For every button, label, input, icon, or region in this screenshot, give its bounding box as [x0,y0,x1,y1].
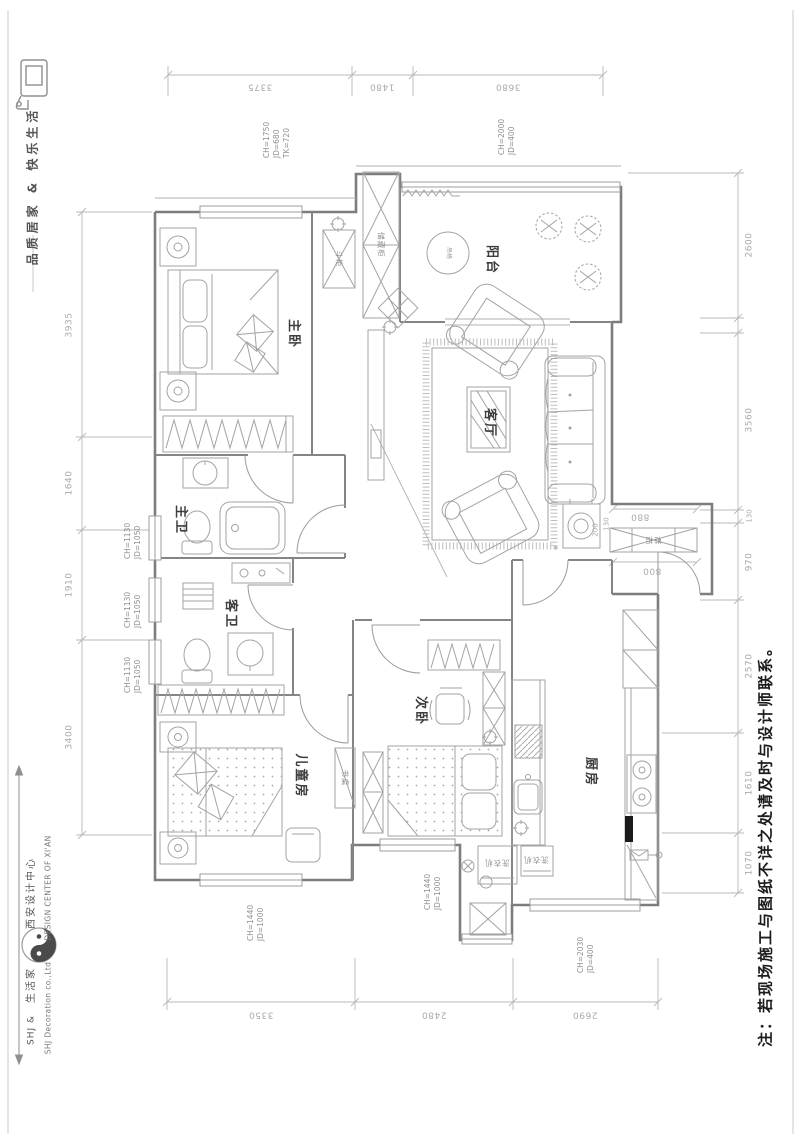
callout-line: JD=680 [272,122,282,158]
window-left-2 [149,578,161,622]
kids-hanger-rail [158,685,284,715]
door-guest-bath [248,585,293,630]
dim-right-1: 2600 [744,233,755,258]
dim-bottom-3: 2690 [573,1008,598,1019]
kitchen-left-counter [512,680,545,845]
flue-box [470,903,506,935]
callout-line: TK=720 [282,122,292,158]
callout-left-window-1: CH=1130 JD=1050 [123,523,143,559]
second-hanger-rail [428,640,500,670]
room-label-kitchen: 厨房 [582,757,598,787]
label-desk: 书桌 [340,770,349,787]
room-label-balcony: 阳台 [483,245,499,275]
callout-master-window: CH=1750 JD=680 TK=720 [262,122,292,158]
dim-left-1: 3935 [64,313,75,338]
callout-left-window-2: CH=1130 JD=1050 [123,592,143,628]
towel-rack [183,583,213,609]
dim-bottom-1: 3350 [249,1008,274,1019]
dim-inner-800: 800 [643,564,662,575]
callout-line: CH=2030 [576,937,586,973]
callout-balcony-window: CH=2000 JD=400 [497,119,517,155]
dim-top-1: 3375 [248,80,273,91]
logo-icon [16,60,47,109]
guest-bath-toilet [182,639,212,683]
callout-line: JD=1050 [133,592,143,628]
dim-right-2: 3560 [744,408,755,433]
room-label-master-bedroom: 主卧 [285,319,301,349]
brand-tagline: 品质居家 & 快乐生活 [26,107,41,266]
company-center-cn: 西安设计中心 [26,857,39,929]
callout-left-window-3: CH=1130 JD=1050 [123,657,143,693]
callout-line: CH=1440 [423,874,433,910]
dim-top-3: 3680 [496,80,521,91]
dim-right-7: 1070 [744,851,755,876]
kids-bed [168,748,282,836]
dim-left-3: 1910 [64,573,75,598]
window-kitchen-bottom [530,899,640,911]
callout-kitchen-window: CH=2030 JD=400 [576,937,596,973]
label-washer-right: 洗衣机 [523,855,549,864]
callout-line: JD=400 [507,119,517,155]
window-master-top [200,206,302,218]
master-wardrobe [163,416,293,452]
tv-cabinet [368,288,418,480]
kitchen-fridge [623,610,658,688]
room-label-guest-bath: 客卫 [222,599,238,629]
bathtub [220,502,285,554]
callout-line: JD=1050 [133,657,143,693]
dim-inner-130: 130 [603,517,612,530]
window-balcony-top [402,182,620,192]
company-name-en: SHJ Decoration co.,Ltd [43,962,52,1055]
callout-kids-window: CH=1440 JD=1000 [246,905,266,941]
callout-line: JD=1050 [133,523,143,559]
door-entry [658,552,700,594]
balcony-plants [536,213,601,290]
guest-bath-sink [228,633,273,675]
label-hanging-chair: 吊椅 [444,247,452,259]
label-storage-cabinet: 储藏柜 [376,232,385,258]
dim-right-3: 130 [746,509,755,522]
kitchen-right-counter [625,688,658,900]
door-bath-corridor [297,505,345,553]
dim-inner-200: 200 [592,523,601,536]
nightstand-master-bottom [160,372,196,410]
living-armchair [439,468,545,569]
second-bedside-cabinet [363,752,383,833]
label-shoe-cabinet: 鞋柜 [645,535,662,544]
callout-line: CH=1130 [123,592,133,628]
door-second-bedroom [372,625,420,673]
label-washer-left: 洗衣机 [484,858,510,867]
dim-right-4: 970 [744,553,755,572]
callout-line: CH=1750 [262,122,272,158]
door-master-bath [245,455,293,503]
dim-top-2: 1480 [370,80,395,91]
title-block-arrow [16,766,23,1064]
nightstand-kids-bottom [160,832,196,864]
balcony-armchair [443,278,550,382]
second-desk-chair [430,688,470,724]
callout-line: CH=1440 [246,905,256,941]
room-label-master-bath: 主卫 [172,505,188,535]
dim-right-5: 2570 [744,654,755,679]
kids-desk-chair [286,828,320,862]
room-label-living-room: 客厅 [481,408,497,438]
callout-line: JD=400 [586,937,596,973]
company-name-cn: 生活家 [26,967,39,1003]
window-left-3 [149,640,161,684]
callout-line: JD=1000 [433,874,443,910]
company-short: SHJ & [26,1015,37,1045]
vanity-shelf [232,563,290,583]
label-chest: 斗柜 [334,251,343,268]
door-kitchen [523,560,568,605]
master-bed [168,270,278,374]
room-label-kids-room: 儿童房 [292,753,308,798]
dim-right-6: 1610 [744,771,755,796]
nightstand-master-top [160,228,196,266]
dim-inner-880: 880 [631,510,650,521]
callout-line: CH=1130 [123,523,133,559]
window-second-bottom [380,839,455,851]
callout-line: CH=2000 [497,119,507,155]
callout-second-window: CH=1440 JD=1000 [423,874,443,910]
second-bed [388,746,502,836]
callout-line: CH=1130 [123,657,133,693]
floor-plan-drawing [0,0,800,1144]
master-bath-sink [183,458,228,488]
callout-line: JD=1000 [256,905,266,941]
dim-left-2: 1640 [64,471,75,496]
dim-bottom-2: 2480 [422,1008,447,1019]
window-kids-bottom [200,874,302,886]
window-left-1 [149,516,161,560]
room-label-second-bedroom: 次卧 [412,696,428,726]
dim-left-4: 3400 [64,725,75,750]
floor-plan-sheet: { "branding": { "tagline": "品质居家 & 快乐生活"… [0,0,800,1144]
door-kids-room [300,695,348,743]
second-wardrobe [483,672,505,745]
doors [245,455,700,743]
company-center-en: DESIGN CENTER OF XI'AN [43,835,52,940]
site-note: 注：若现场施工与图纸不详之处请及时与设计师联系。 [757,639,776,1047]
